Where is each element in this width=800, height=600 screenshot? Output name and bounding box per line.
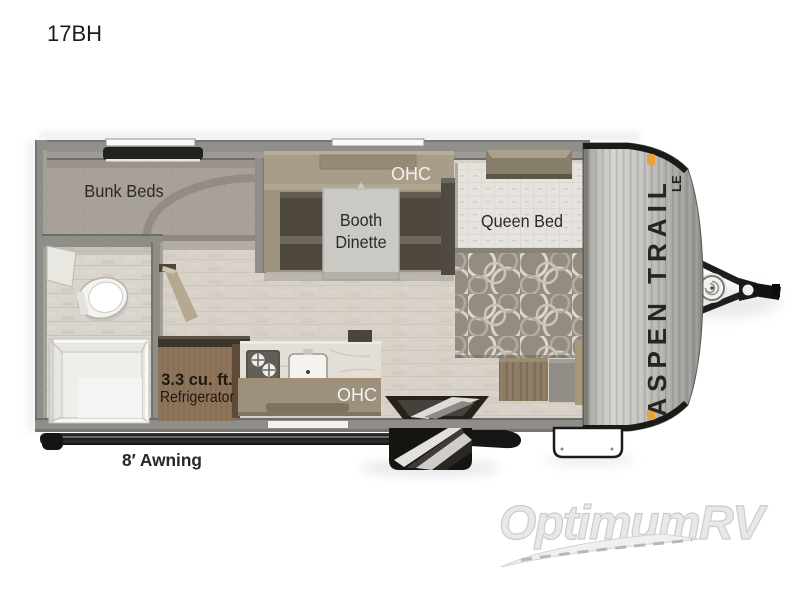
svg-text:Queen Bed: Queen Bed [481,211,563,231]
svg-text:Booth: Booth [340,210,382,230]
svg-text:17BH: 17BH [47,21,102,46]
svg-text:3.3 cu. ft.: 3.3 cu. ft. [161,370,232,389]
svg-text:LE: LE [669,175,684,192]
svg-text:Dinette: Dinette [335,232,386,252]
svg-text:ASPEN TRAIL: ASPEN TRAIL [642,177,672,416]
svg-text:Bunk Beds: Bunk Beds [84,182,164,202]
svg-text:OHC: OHC [337,385,377,405]
svg-text:OHC: OHC [391,164,431,184]
svg-text:8′ Awning: 8′ Awning [122,450,202,470]
svg-text:Refrigerator: Refrigerator [160,388,234,406]
